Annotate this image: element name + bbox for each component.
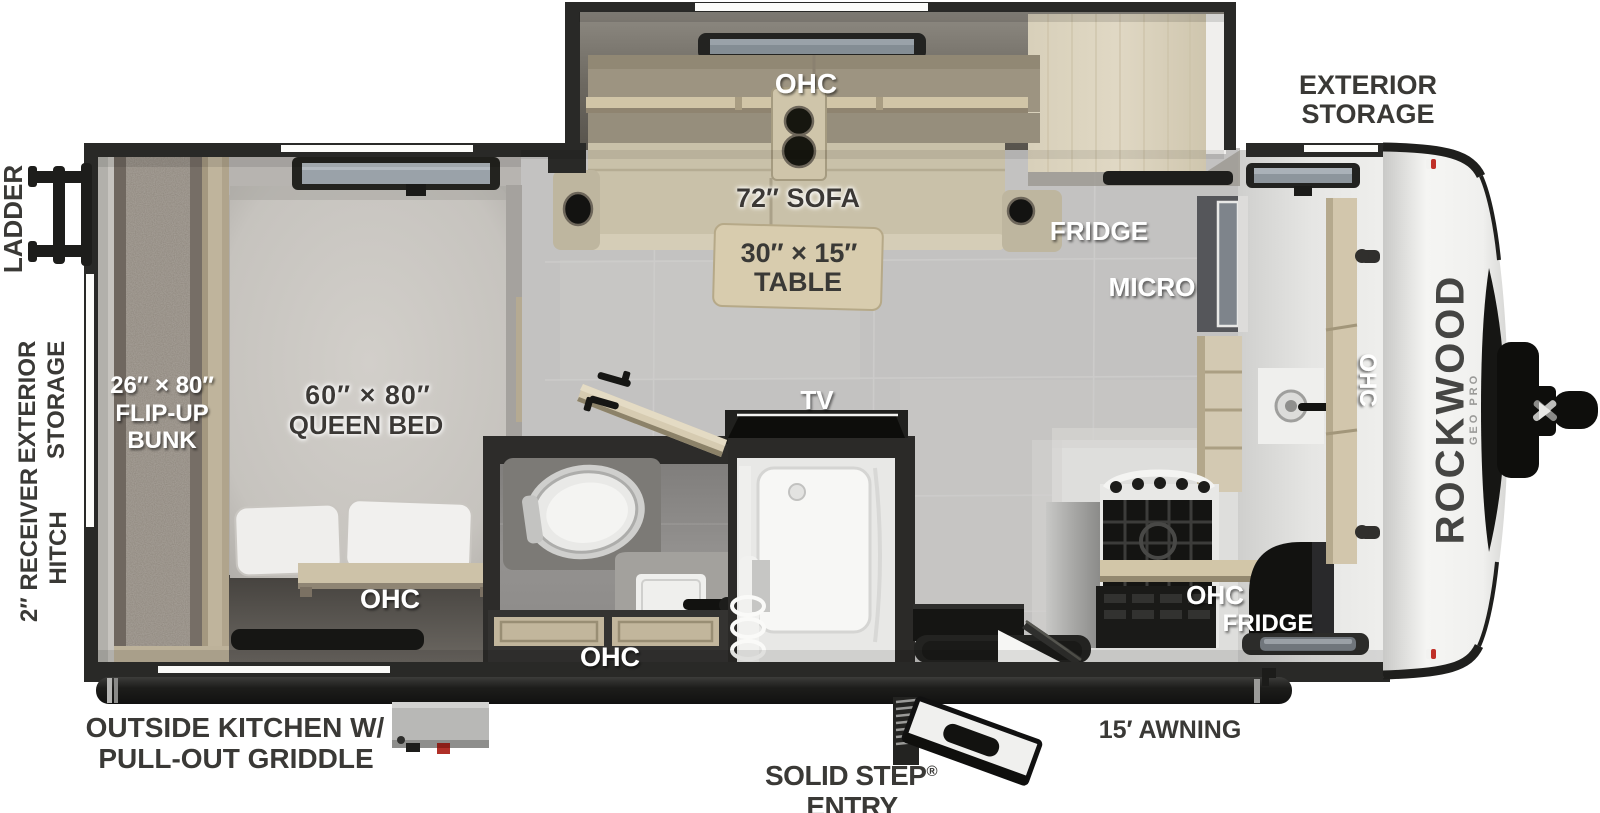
- svg-text:TABLE: TABLE: [754, 267, 842, 297]
- svg-text:SOLID STEP®: SOLID STEP®: [765, 760, 937, 791]
- svg-text:OHC: OHC: [1354, 353, 1381, 406]
- svg-text:BUNK: BUNK: [127, 427, 197, 454]
- svg-text:MICRO: MICRO: [1109, 272, 1196, 302]
- svg-text:26″ × 80″: 26″ × 80″: [110, 372, 214, 399]
- svg-text:FRIDGE: FRIDGE: [1223, 610, 1314, 637]
- svg-text:PULL-OUT GRIDDLE: PULL-OUT GRIDDLE: [98, 743, 373, 774]
- svg-text:QUEEN BED: QUEEN BED: [289, 410, 444, 440]
- svg-text:ROCKWOOD: ROCKWOOD: [1429, 274, 1473, 545]
- svg-text:72″ SOFA: 72″ SOFA: [736, 183, 860, 213]
- svg-text:EXTERIOR: EXTERIOR: [14, 341, 41, 464]
- svg-text:60″ × 80″: 60″ × 80″: [305, 380, 431, 410]
- svg-text:30″ × 15″: 30″ × 15″: [741, 238, 858, 268]
- svg-text:2″ RECEIVER: 2″ RECEIVER: [16, 468, 43, 622]
- svg-text:STORAGE: STORAGE: [43, 341, 70, 459]
- svg-text:HITCH: HITCH: [45, 511, 72, 584]
- svg-text:OHC: OHC: [775, 68, 837, 99]
- svg-text:OHC: OHC: [1186, 580, 1244, 610]
- svg-text:TV: TV: [800, 385, 834, 415]
- svg-text:ENTRY: ENTRY: [806, 791, 898, 813]
- svg-text:FRIDGE: FRIDGE: [1050, 216, 1148, 246]
- svg-text:FLIP-UP: FLIP-UP: [115, 400, 208, 427]
- svg-text:EXTERIOR: EXTERIOR: [1299, 70, 1437, 100]
- svg-text:GEO PRO: GEO PRO: [1468, 373, 1480, 445]
- svg-text:OHC: OHC: [580, 642, 640, 672]
- svg-text:LADDER: LADDER: [0, 165, 28, 274]
- svg-text:OHC: OHC: [360, 584, 420, 614]
- svg-text:STORAGE: STORAGE: [1301, 99, 1434, 129]
- svg-text:15′ AWNING: 15′ AWNING: [1099, 716, 1242, 744]
- svg-text:OUTSIDE KITCHEN W/: OUTSIDE KITCHEN W/: [86, 712, 385, 743]
